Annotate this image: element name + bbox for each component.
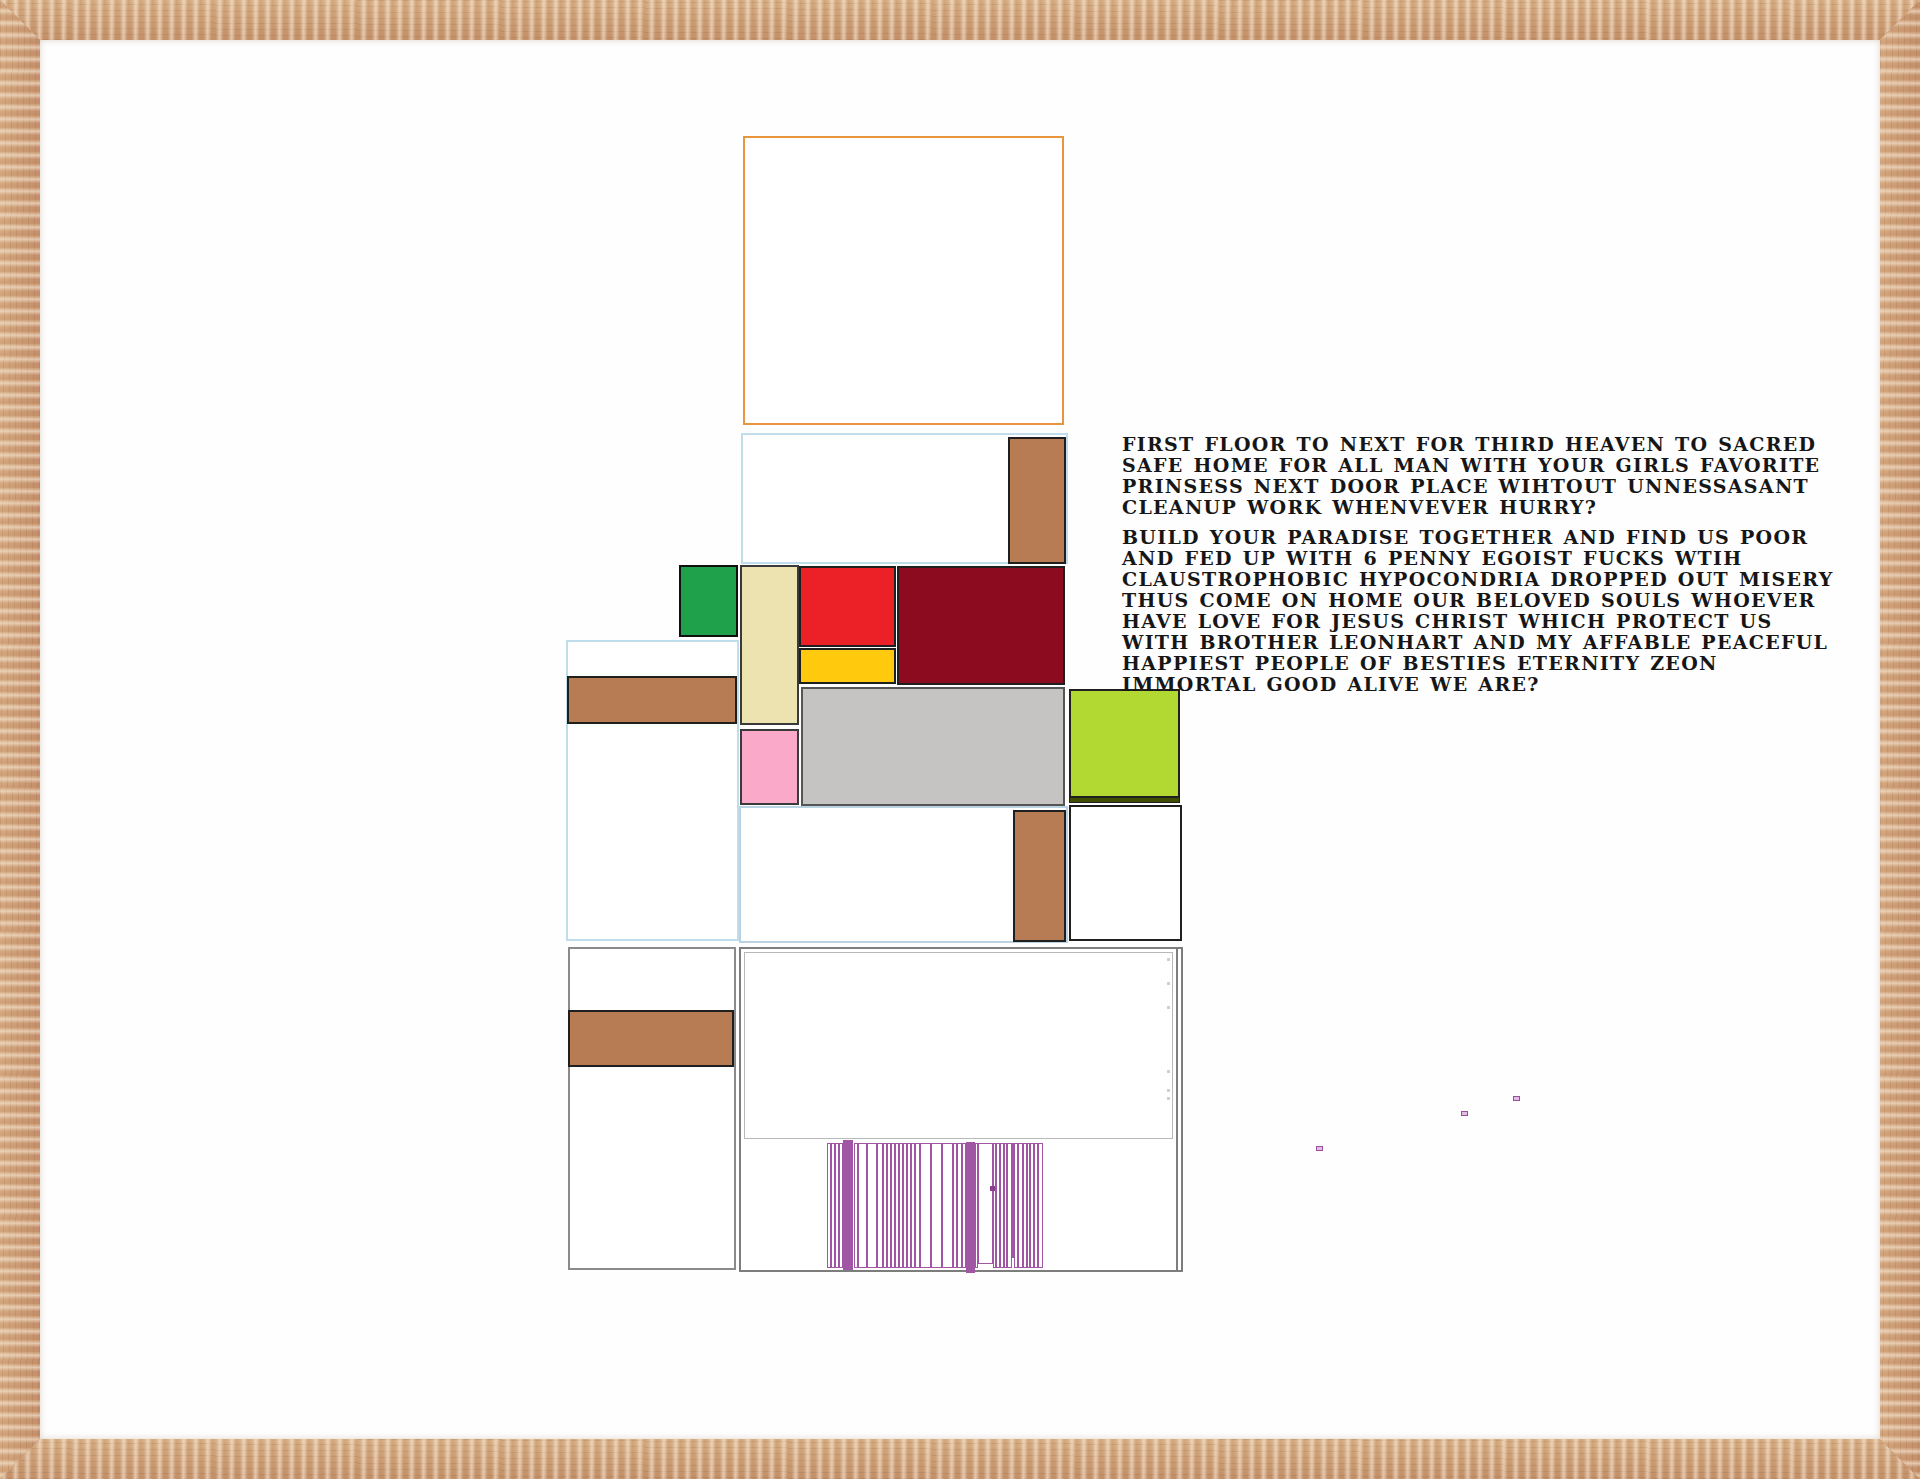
dark-olive-strip	[1069, 797, 1180, 803]
poem-paragraph-1: FIRST FLOOR TO NEXT FOR THIRD HEAVEN TO …	[1122, 434, 1920, 518]
brown-block-mid	[1013, 810, 1066, 942]
door-strip	[858, 1143, 867, 1268]
chartreuse-square	[1069, 689, 1180, 798]
gray-rect	[801, 687, 1065, 806]
poem-line: CLAUSTROPHOBIC HYPOCONDRIA DROPPED OUT M…	[1122, 569, 1920, 590]
yellow-rect	[799, 648, 896, 684]
door-strip	[920, 1143, 931, 1268]
poem-line: IMMORTAL GOOD ALIVE WE ARE?	[1122, 674, 1920, 695]
faint-speck	[1167, 1006, 1170, 1009]
poem-line: HAVE LOVE FOR JESUS CHRIST WHICH PROTECT…	[1122, 611, 1920, 632]
poem-text-block: FIRST FLOOR TO NEXT FOR THIRD HEAVEN TO …	[1122, 434, 1920, 704]
faint-speck	[1167, 1097, 1170, 1100]
poem-line: FIRST FLOOR TO NEXT FOR THIRD HEAVEN TO …	[1122, 434, 1920, 455]
faint-speck	[1167, 982, 1170, 985]
door-strip	[1038, 1143, 1043, 1268]
door-strip	[942, 1143, 953, 1268]
door-strip	[867, 1143, 877, 1268]
poem-line: BUILD YOUR PARADISE TOGETHER AND FIND US…	[1122, 527, 1920, 548]
brown-bar-bottom	[568, 1010, 734, 1067]
purple-dot	[1513, 1096, 1520, 1101]
picture-frame-bottom	[0, 1439, 1920, 1479]
poem-line: WITH BROTHER LEONHART AND MY AFFABLE PEA…	[1122, 632, 1920, 653]
artwork-canvas: FIRST FLOOR TO NEXT FOR THIRD HEAVEN TO …	[40, 40, 1880, 1439]
picture-frame-top	[0, 0, 1920, 40]
door-strip	[931, 1143, 942, 1268]
door-knob	[990, 1186, 995, 1191]
purple-dot	[1316, 1146, 1323, 1151]
poem-line: HAPPIEST PEOPLE OF BESTIES ETERNITY ZEON	[1122, 653, 1920, 674]
faint-speck	[1167, 1070, 1170, 1073]
poem-line: CLEANUP WORK WHENVEVER HURRY?	[1122, 497, 1920, 518]
white-rect-right	[1069, 805, 1182, 941]
cream-vertical-rect	[740, 565, 799, 725]
bottom-left-rect	[568, 947, 736, 1270]
door-strip	[978, 1143, 993, 1264]
brown-bar-left	[567, 676, 737, 724]
faint-speck	[1167, 958, 1170, 961]
poem-line: SAFE HOME FOR ALL MAN WITH YOUR GIRLS FA…	[1122, 455, 1920, 476]
inner-outline-rect	[744, 952, 1173, 1139]
poem-line: PRINSESS NEXT DOOR PLACE WIHTOUT UNNESSA…	[1122, 476, 1920, 497]
poem-line: AND FED UP WITH 6 PENNY EGOIST FUCKS WTI…	[1122, 548, 1920, 569]
pink-rect	[740, 729, 799, 805]
brown-block-upper-right	[1008, 437, 1066, 564]
maroon-rect	[897, 566, 1065, 685]
purple-dot	[1461, 1111, 1468, 1116]
picture-frame-left	[0, 0, 40, 1479]
orange-outline-rect	[743, 136, 1064, 425]
door-strip	[843, 1140, 853, 1270]
picture-frame-right	[1880, 0, 1920, 1479]
green-square	[679, 565, 738, 637]
bottom-big-rect-inner-edge	[1176, 949, 1178, 1270]
faint-speck	[1167, 1089, 1170, 1092]
door-strip	[966, 1142, 975, 1273]
poem-paragraph-2: BUILD YOUR PARADISE TOGETHER AND FIND US…	[1122, 527, 1920, 695]
poem-line: THUS COME ON HOME OUR BELOVED SOULS WHOE…	[1122, 590, 1920, 611]
red-rect	[799, 566, 896, 647]
